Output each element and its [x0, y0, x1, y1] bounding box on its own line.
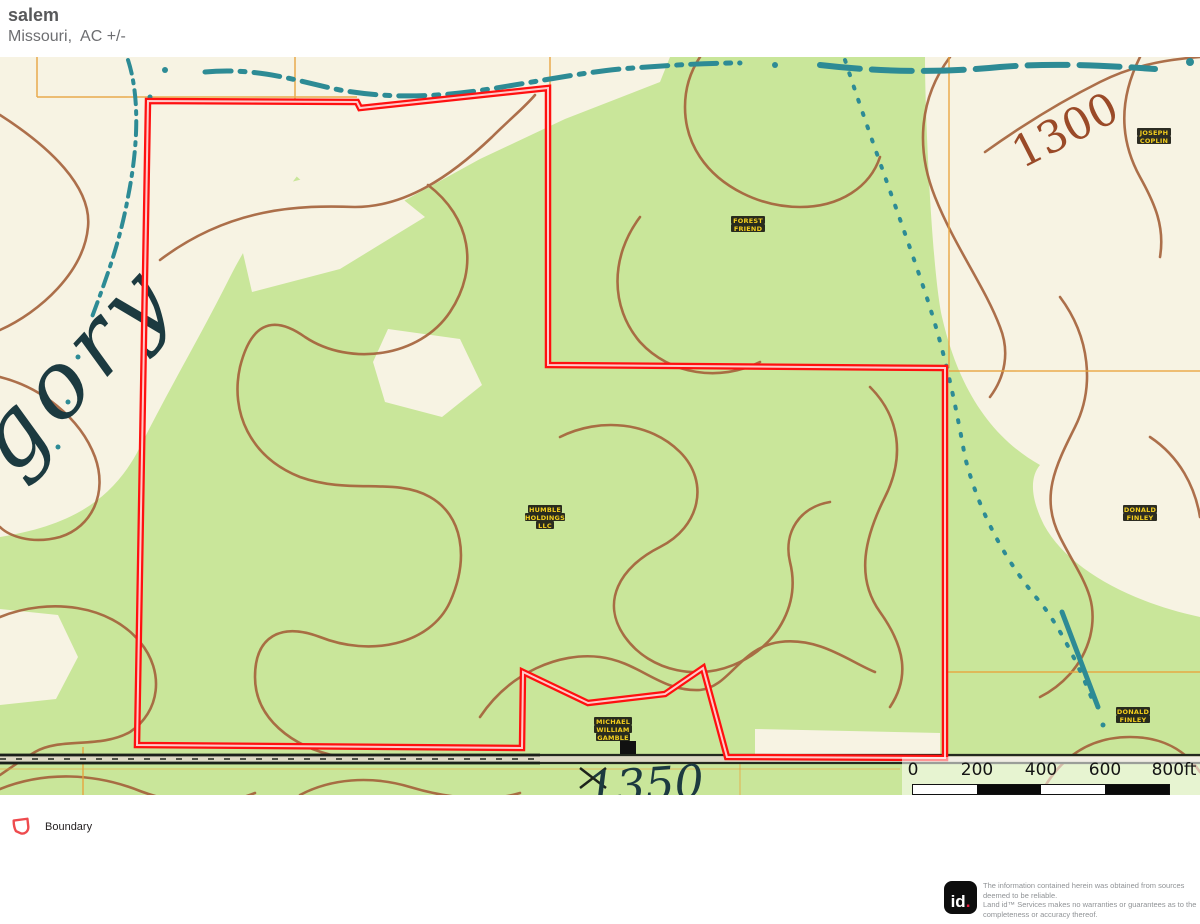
- legend: Boundary: [10, 813, 92, 841]
- owner-label-donald-finley-1: DONALD FINLEY: [1123, 505, 1157, 522]
- svg-text:GAMBLE: GAMBLE: [597, 734, 629, 742]
- scale-label-200: 200: [961, 760, 993, 780]
- svg-text:FRIEND: FRIEND: [734, 225, 763, 233]
- svg-text:MICHAEL: MICHAEL: [596, 718, 630, 726]
- logo-red-dot: .: [966, 892, 971, 912]
- owner-label-forest-friend: FOREST FRIEND: [731, 216, 765, 233]
- page-title: salem: [8, 4, 126, 26]
- scale-label-400: 400: [1025, 760, 1057, 780]
- svg-text:HUMBLE: HUMBLE: [529, 506, 561, 514]
- building-marker: [620, 741, 636, 754]
- elevation-label-1350: 1350: [585, 754, 706, 795]
- owner-label-michael-gamble: MICHAEL WILLIAM GAMBLE: [594, 717, 632, 742]
- map-header: salem Missouri, AC +/-: [8, 4, 126, 47]
- svg-text:DONALD: DONALD: [1117, 708, 1150, 716]
- scale-bar-segments: [912, 784, 1170, 795]
- owner-label-joseph-coplin: JOSEPH COPLIN: [1137, 128, 1171, 145]
- legend-item-boundary: Boundary: [45, 821, 92, 833]
- svg-text:HOLDINGS: HOLDINGS: [525, 514, 565, 522]
- owner-label-donald-finley-2: DONALD FINLEY: [1116, 707, 1150, 724]
- svg-text:JOSEPH: JOSEPH: [1139, 129, 1168, 137]
- boundary-polygon-icon: [10, 816, 32, 838]
- scale-label-800ft: 800ft: [1152, 760, 1197, 780]
- svg-text:WILLIAM: WILLIAM: [596, 726, 629, 734]
- land-id-logo: id.: [944, 881, 977, 914]
- footer: id. The information contained herein was…: [944, 881, 1200, 919]
- scale-label-600: 600: [1089, 760, 1121, 780]
- page-subtitle: Missouri, AC +/-: [8, 26, 126, 47]
- scale-bar: 0 200 400 600 800ft: [902, 757, 1200, 799]
- svg-text:LLC: LLC: [538, 522, 552, 530]
- svg-text:FINLEY: FINLEY: [1120, 716, 1147, 724]
- scale-label-0: 0: [908, 760, 919, 780]
- svg-text:DONALD: DONALD: [1124, 506, 1157, 514]
- svg-text:COPLIN: COPLIN: [1140, 137, 1168, 145]
- disclaimer-text: The information contained herein was obt…: [983, 881, 1200, 919]
- svg-text:FOREST: FOREST: [733, 217, 763, 225]
- svg-text:FINLEY: FINLEY: [1127, 514, 1154, 522]
- topo-map-canvas[interactable]: gory 1300 1350 JOSEPH COPLIN FOREST FRIE…: [0, 57, 1200, 795]
